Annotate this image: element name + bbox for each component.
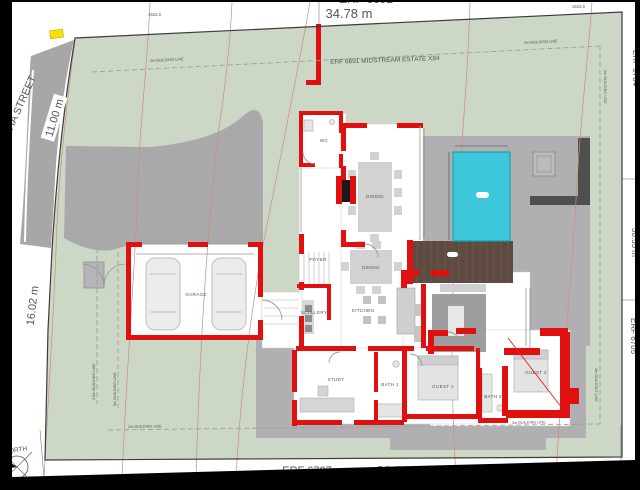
room-label-dining: DINING [366, 194, 384, 199]
site-plan-sheet: ERF 6692 34.78 m ERF 6691 MIDSTREAM ESTA… [0, 0, 640, 490]
room-label-bath2: BATH 2 [484, 394, 502, 399]
bl-east-label-2: 2m BUILDING LINE [594, 368, 598, 402]
bl-south-label-1: 2m BUILDING LINE [128, 424, 162, 429]
room-label-foyer: FOYER [309, 257, 327, 262]
room-label-garage: GARAGE [185, 292, 206, 297]
bl-south-label-2: 2m BUILDING LINE [512, 420, 546, 425]
timber-deck [410, 241, 513, 283]
contour-label-2: 1522.6 [572, 4, 585, 9]
room-label-kitchen: KITCHEN [352, 308, 374, 313]
room-label-scullery: SCULLERY [301, 310, 328, 315]
room-label-guest1: GUEST 1 [432, 384, 454, 389]
room-label-wc: WC [320, 138, 329, 143]
room-label-guest2: GUEST 2 [525, 370, 547, 375]
fireplace [342, 180, 350, 202]
bl-west-label-35: 3.5m BUILDING LINE [92, 363, 96, 400]
bl-west-label-5: 5m BUILDING LINE [113, 372, 117, 406]
survey-marker [50, 29, 64, 39]
contour-label-1: 1522.8 [148, 12, 161, 17]
site-plan-drawing: ERF 6692 34.78 m ERF 6691 MIDSTREAM ESTA… [0, 0, 640, 490]
room-label-bath1: BATH 1 [381, 382, 399, 387]
room-label-study: STUDY [327, 377, 344, 382]
room-label-dining2: DINING [362, 265, 380, 270]
swimming-pool [449, 146, 510, 241]
dim-top-label: 34.78 m [326, 6, 373, 21]
bl-east-label-1: 2m BUILDING LINE [603, 70, 607, 104]
braai-structure [533, 152, 555, 176]
